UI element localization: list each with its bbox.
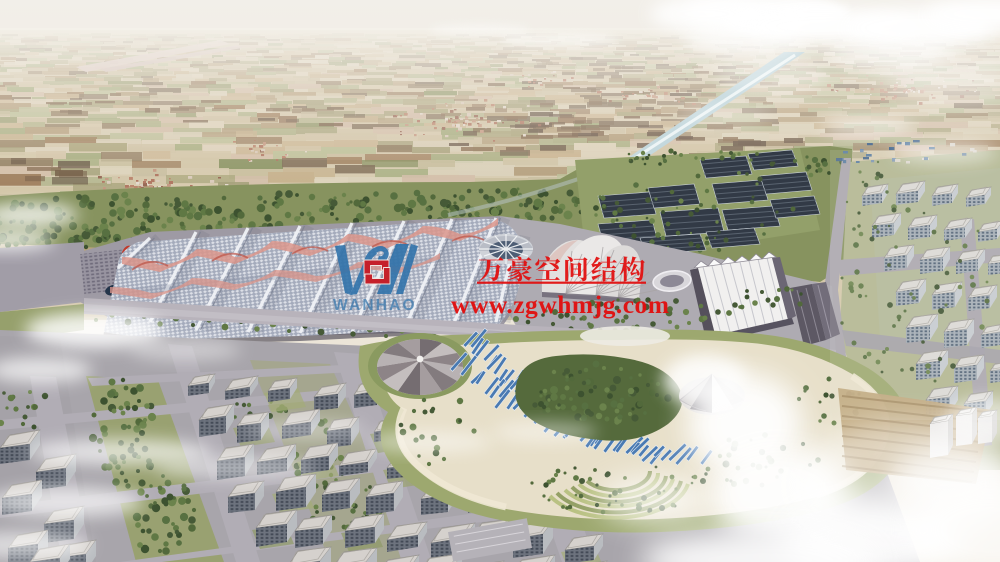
svg-text:WANHAO: WANHAO bbox=[333, 297, 417, 314]
svg-text:www.zgwhmjg.com: www.zgwhmjg.com bbox=[451, 290, 670, 319]
